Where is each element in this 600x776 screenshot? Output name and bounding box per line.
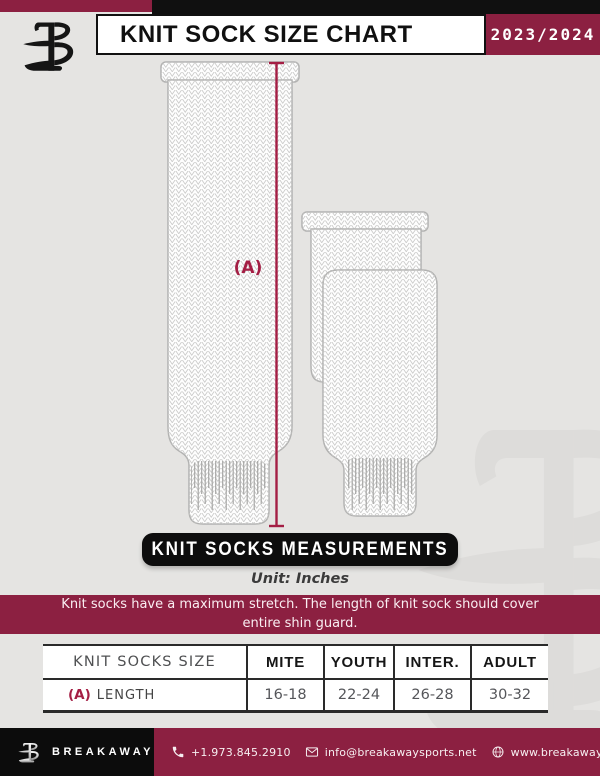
footer-contacts: +1.973.845.2910 info@breakawaysports.net… (154, 728, 600, 776)
phone-icon (171, 745, 185, 759)
footer-breakaway-logo (17, 740, 44, 765)
top-black-strip (152, 0, 600, 15)
season-badge: 2023/2024 (486, 14, 600, 55)
sock-tall-adult (161, 62, 299, 524)
email-link[interactable]: info@breakawaysports.net (305, 745, 477, 759)
table-header-mite: MITE (246, 646, 323, 680)
title-box: KNIT SOCK SIZE CHART (96, 14, 486, 55)
measure-label-a: (A) (234, 258, 263, 278)
length-value-mite: 16-18 (246, 680, 323, 710)
unit-note: Unit: Inches (0, 571, 600, 587)
breakaway-b-logo (20, 15, 86, 77)
length-value-inter: 26-28 (393, 680, 470, 710)
website-url: www.breakawaysports.net (511, 746, 600, 759)
notice-line-2: entire shin guard. (242, 615, 357, 633)
footer-brand-name: BREAKAWAY (52, 746, 154, 758)
length-value-adult: 30-32 (470, 680, 548, 710)
page-title: KNIT SOCK SIZE CHART (120, 21, 413, 49)
table-row-length-label: (A) LENGTH (43, 680, 246, 710)
footer: BREAKAWAY +1.973.845.2910 info@breakaway… (0, 728, 600, 776)
size-table: KNIT SOCKS SIZE MITE YOUTH INTER. ADULT … (43, 644, 548, 713)
length-value-youth: 22-24 (323, 680, 393, 710)
table-header-youth: YOUTH (323, 646, 393, 680)
stretch-notice: Knit socks have a maximum stretch. The l… (0, 595, 600, 634)
measurements-banner: KNIT SOCKS MEASUREMENTS (142, 533, 458, 566)
table-header-adult: ADULT (470, 646, 548, 680)
row-name-length: LENGTH (97, 688, 156, 703)
footer-brand: BREAKAWAY (0, 728, 154, 776)
email-address: info@breakawaysports.net (325, 746, 477, 759)
measurement-line-a (269, 63, 284, 526)
table-header-label: KNIT SOCKS SIZE (43, 646, 246, 680)
top-maroon-strip (0, 0, 152, 12)
row-key-a: (A) (68, 687, 91, 703)
envelope-icon (305, 745, 319, 759)
phone-number: +1.973.845.2910 (191, 746, 291, 759)
notice-line-1: Knit socks have a maximum stretch. The l… (61, 596, 538, 614)
knit-sock-size-chart-page: KNIT SOCK SIZE CHART 2023/2024 (0, 0, 600, 776)
table-header-inter: INTER. (393, 646, 470, 680)
sock-medium-back (302, 212, 428, 382)
website-link[interactable]: www.breakawaysports.net (491, 745, 600, 759)
globe-icon (491, 745, 505, 759)
measurements-banner-title: KNIT SOCKS MEASUREMENTS (152, 539, 449, 561)
phone-link[interactable]: +1.973.845.2910 (171, 745, 291, 759)
